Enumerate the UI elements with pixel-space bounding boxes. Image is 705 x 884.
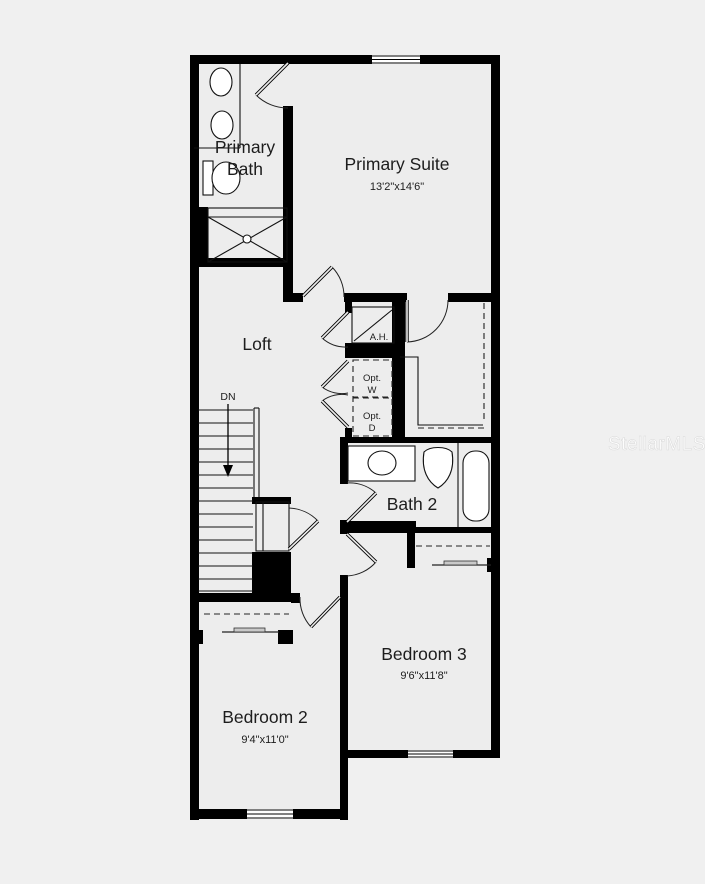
- primary-suite-label: Primary Suite: [344, 154, 449, 174]
- opt-dryer-label: D: [369, 423, 376, 434]
- opt-washer-label: Opt.: [363, 373, 381, 384]
- loft-label: Loft: [242, 334, 271, 354]
- air-handler-label: A.H.: [370, 332, 388, 343]
- floor-plan-drawing: Primary Bath Primary Suite 13'2"x14'6" L…: [0, 0, 705, 884]
- bedroom2-dims: 9'4"x11'0": [241, 734, 288, 746]
- primary-bath-label: Bath: [227, 159, 263, 179]
- window-bedroom-3: [408, 750, 453, 758]
- sink-icon: [210, 68, 232, 96]
- bedroom3-dims: 9'6"x11'8": [400, 670, 447, 682]
- sink-icon: [211, 111, 233, 139]
- opt-dryer-label: Opt.: [363, 411, 381, 422]
- closet-rod-bar: [234, 628, 265, 632]
- primary-suite-dims: 13'2"x14'6": [370, 181, 424, 193]
- opt-washer-label: W: [368, 385, 377, 396]
- primary-bath-label: Primary: [215, 137, 276, 157]
- window-primary-suite: [372, 55, 420, 64]
- stairs-dn-label: DN: [220, 391, 235, 403]
- bedroom2-label: Bedroom 2: [222, 707, 308, 727]
- bath2-label: Bath 2: [387, 494, 438, 514]
- bedroom3-label: Bedroom 3: [381, 644, 467, 664]
- floor-plan-page: Primary Bath Primary Suite 13'2"x14'6" L…: [0, 0, 705, 884]
- closet-rod-bar: [444, 561, 477, 565]
- window-bedroom-2: [247, 809, 293, 819]
- sink-icon: [368, 451, 396, 475]
- stellar-mls-watermark: StellarMLS: [608, 434, 705, 455]
